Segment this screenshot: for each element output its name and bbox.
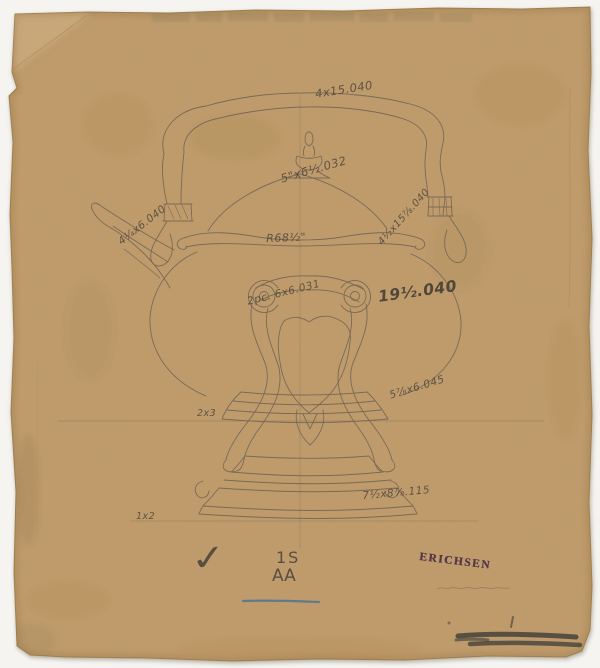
inventory-mark-line2: AA <box>272 566 296 586</box>
scanned-drawing-page: 4x15.040 5"x6½.032 4¼x6.040 4½x15⅞.040 R… <box>0 0 600 668</box>
blue-pencil-line <box>243 601 319 602</box>
faint-top-stamp-band <box>152 12 472 22</box>
annotation-radius: R68½" <box>266 231 306 245</box>
drawing-svg <box>0 0 600 668</box>
check-mark: ✓ <box>188 536 229 581</box>
annotation-bottom-left-dim: 1x2 <box>136 511 155 522</box>
inventory-mark-line1: 1S <box>276 548 300 567</box>
annotation-left-small-dim: 2x3 <box>197 408 216 419</box>
